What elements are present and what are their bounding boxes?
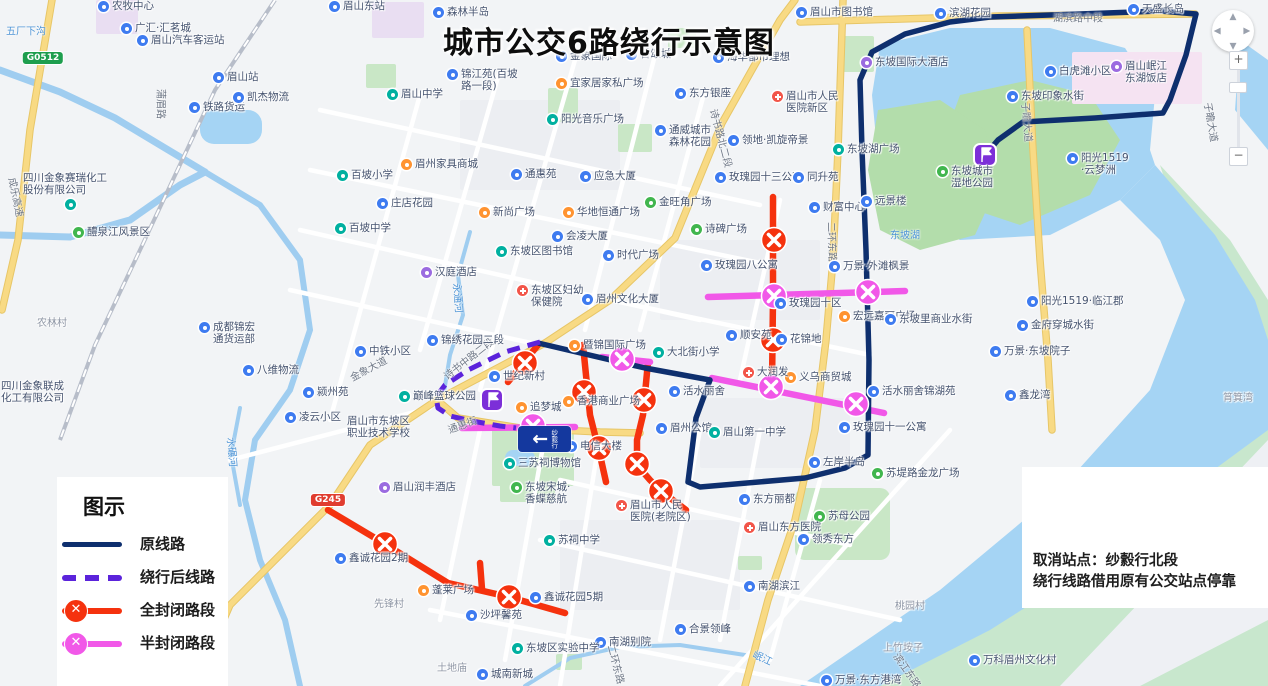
place-icon [243,365,254,376]
place-icon [969,655,980,666]
place-icon [329,1,340,12]
place-icon [466,610,477,621]
place-icon [728,135,739,146]
map-poi: 万景·东方港湾 [821,675,901,686]
map-poi: 暨锦国际广场 [569,340,646,352]
map-poi: 眉山汽车客运站 [137,35,225,47]
poi-label: 领秀东方 [812,534,854,546]
shopping-icon [401,159,412,170]
map-poi: 南湖别院 [595,637,651,649]
map-poi: 玫瑰园十区 [775,298,842,310]
poi-label: 玫瑰园八公寓 [715,260,778,272]
place-icon [885,314,896,325]
poi-label: 万科眉州文化村 [983,655,1057,667]
school-icon [544,535,555,546]
map-poi: 土地庙 [437,663,467,674]
poi-label: 东方银座 [689,88,731,100]
place-icon [1128,4,1139,15]
map-poi: 时代广场 [603,250,659,262]
legend-item-dashed: 绕行后线路 [57,560,228,593]
poi-label: 锦江苑(百坡 路一段) [461,69,518,93]
poi-label: 义乌商贸城 [799,372,852,384]
poi-label: 庄店花园 [391,198,433,210]
place-icon [233,92,244,103]
shopping-icon [516,402,527,413]
poi-label: 金府穿城水街 [1031,320,1094,332]
park-icon [645,197,656,208]
map-area [200,110,262,144]
map-poi: 顺安苑 [726,330,772,342]
poi-label: 眉州公馆 [670,423,712,435]
place-icon [552,231,563,242]
map-poi: 百坡小学 [337,170,393,182]
zoom-in-button[interactable]: + [1229,51,1248,70]
map-poi: 锦绣花园二段 [427,335,504,347]
poi-label: 眉山市人民 医院(老院区) [630,500,691,524]
school-icon [496,246,507,257]
poi-label: 华地恒通广场 [577,207,640,219]
map-poi: 同升苑 [793,172,839,184]
poi-label: 香港商业广场 [577,396,640,408]
map-poi: 南湖滨江 [744,581,800,593]
place-icon [303,387,314,398]
shopping-icon [556,78,567,89]
place-icon [796,7,807,18]
water-label: 五厂下沟 [6,23,46,38]
map-poi: 眉州公馆 [656,423,712,435]
highway-shield: G245 [311,494,345,506]
place-icon [580,171,591,182]
poi-label: 蓬莱广场 [432,585,474,597]
map-poi [65,199,79,210]
poi-label: 百坡小学 [351,170,393,182]
poi-label: 玫瑰园十一公寓 [853,422,927,434]
poi-label: 眉山润丰酒店 [393,482,456,494]
place-icon [199,322,210,333]
park-icon [691,224,702,235]
poi-label: 玫瑰园十区 [789,298,842,310]
place-icon [285,412,296,423]
map-poi: 鑫龙湾 [1005,390,1051,402]
place-icon [1027,296,1038,307]
map-poi: 左岸半岛 [809,457,865,469]
poi-label: 三苏祠博物馆 [518,458,581,470]
map-poi: 东坡宋城· 香蝶慈航 [511,482,570,506]
poi-label: 汉庭酒店 [435,267,477,279]
map-poi: 森林半岛 [433,7,489,19]
map-poi: 金旺角广场 [645,197,712,209]
map-poi: 阳光1519·临江郡 [1027,296,1124,308]
school-icon [399,391,410,402]
map-poi: 筲箕湾 [1223,393,1253,404]
place-icon [530,592,541,603]
closure-x-icon: ✕ [64,632,88,656]
highway-shield: G0512 [23,52,63,64]
zoom-slider-handle[interactable] [1229,82,1247,93]
poi-label: 新尚广场 [493,207,535,219]
poi-label: 中铁小区 [369,346,411,358]
poi-label: 南湖滨江 [758,581,800,593]
shopping-icon [479,207,490,218]
road-label: 蒲眉路 [155,89,170,119]
map-poi: 苏母公园 [814,511,870,523]
poi-label: 天盛长岛 [1142,4,1184,16]
legend-rows: 原线路绕行后线路✕全封闭路段✕半封闭路段 [57,527,228,659]
shopping-icon [839,311,850,322]
poi-label: 诗碑广场 [705,224,747,236]
map-poi: 会凌大厦 [552,231,608,243]
hotel-icon [421,267,432,278]
park-icon [511,482,522,493]
map-poi: 万科眉州文化村 [969,655,1057,667]
place-icon [935,8,946,19]
map-poi: 鑫诚花园5期 [530,592,603,604]
poi-label: 白虎滩小区 [1059,66,1112,78]
map-poi: 眉山中学 [387,89,443,101]
water-label: 东坡湖 [890,227,920,242]
poi-label: 苏祠中学 [558,535,600,547]
poi-label: 眉山中学 [401,89,443,101]
place-icon [861,196,872,207]
hospital-icon [517,285,528,296]
poi-label: 东坡宋城· 香蝶慈航 [525,482,570,506]
map-poi: 眉山市人民 医院新区 [772,91,839,115]
map-poi: 眉山站 [213,72,259,84]
school-icon [335,223,346,234]
water-label: 水碾河 [224,436,242,467]
poi-label: 大润发 [757,367,789,379]
map-poi: 凌云小区 [285,412,341,424]
poi-label: 眉州家具商城 [415,159,478,171]
map-poi: 通惠苑 [511,169,557,181]
poi-label: 锦绣花园二段 [441,335,504,347]
place-icon [776,334,787,345]
legend-header: 图示 [83,491,228,521]
hotel-icon [861,57,872,68]
poi-label: 铁路货运 [203,102,245,114]
poi-label: 眉山第一中学 [723,427,786,439]
shopping-icon [418,585,429,596]
place-icon [868,386,879,397]
map-poi: 四川金象联成 化工有限公司 [1,381,64,405]
place-icon [355,346,366,357]
poi-label: 农林村 [37,318,67,329]
map-poi: 世纪新村 [489,371,545,383]
shopping-icon [563,396,574,407]
poi-label: 眉山站 [227,72,259,84]
poi-label: 沙坪馨苑 [480,610,522,622]
legend-swatch-red: ✕ [60,597,124,623]
poi-label: 东坡区妇幼 保健院 [531,285,584,309]
map-poi: 东坡湖广场 [833,144,900,156]
map-poi: 眉山市图书馆 [796,7,873,19]
poi-label: 颍州苑 [317,387,349,399]
place-icon [675,624,686,635]
hotel-icon [379,482,390,493]
poi-label: 城南新城 [491,669,533,681]
poi-label: 东坡湖广场 [847,144,900,156]
place-icon [1007,91,1018,102]
poi-label: 东坡印象水街 [1021,91,1084,103]
poi-label: 合景领峰 [689,624,731,636]
poi-label: 通惠苑 [525,169,557,181]
place-icon [809,202,820,213]
school-icon [653,347,664,358]
map-poi: 宜家居家私广场 [556,78,644,90]
map-poi: 东坡区图书馆 [496,246,573,258]
poi-label: 巅峰篮球公园 [413,391,476,403]
map-poi: 农林村 [37,318,67,329]
place-icon [656,423,667,434]
place-icon [489,371,500,382]
park-icon [937,166,948,177]
poi-label: 领地·凯旋帝景 [742,135,808,147]
poi-label: 眉山市图书馆 [810,7,873,19]
map-poi: 万景·外滩枫景 [829,261,909,273]
one-way-sign-street: 纱縠行 [550,429,557,449]
poi-label: 东坡区实验中学 [526,643,600,655]
place-icon [98,1,109,12]
map-poi: 蓬莱广场 [418,585,474,597]
poi-label: 凯杰物流 [247,92,289,104]
map-poi: 合景领峰 [675,624,731,636]
poi-label: 玫瑰园十三公寓 [729,172,803,184]
one-way-sign: ← 纱縠行 [518,426,571,452]
map-poi: 义乌商贸城 [785,372,852,384]
note-line1: 取消站点：纱縠行北段 [1033,551,1268,572]
place-icon [1017,320,1028,331]
school-icon [504,458,515,469]
map-poi: 玫瑰园十三公寓 [715,172,803,184]
place-icon [744,581,755,592]
place-icon [726,330,737,341]
map-poi: 玫瑰园十一公寓 [839,422,927,434]
compass-control[interactable]: ▲ ▲ ▲ ▲ [1212,10,1254,52]
legend-swatch-magenta: ✕ [60,630,124,656]
poi-label: 远景楼 [875,196,907,208]
poi-label: 眉山岷江 东湖饭店 [1125,61,1167,85]
school-icon [65,199,76,210]
map-poi: 大润发 [743,367,789,379]
map-area [366,64,396,88]
map-poi: 阳光1519 ·云梦洲 [1067,153,1129,177]
pan-west-icon[interactable]: ▲ [1212,28,1222,35]
map-poi: 眉山润丰酒店 [379,482,456,494]
poi-label: 左岸半岛 [823,457,865,469]
park-icon [73,227,84,238]
school-icon [547,114,558,125]
place-icon [990,346,1001,357]
map-poi: 先锋村 [374,599,404,610]
place-icon [715,172,726,183]
closure-x-icon: ✕ [64,599,88,623]
map-poi: 庄店花园 [377,198,433,210]
legend-label: 绕行后线路 [140,566,215,587]
place-icon [377,198,388,209]
map-poi: 汉庭酒店 [421,267,477,279]
poi-label: 顺安苑 [740,330,772,342]
poi-label: 时代广场 [617,250,659,262]
map-poi: 东坡里商业水街 [885,314,973,326]
hospital-icon [743,367,754,378]
poi-label: 四川金象赛瑞化工 股份有限公司 [23,173,107,197]
poi-label: 苏堤路金龙广场 [886,468,960,480]
poi-label: 森林半岛 [447,7,489,19]
map-poi: 应急大厦 [580,171,636,183]
map-poi: 华地恒通广场 [563,207,640,219]
map-poi: 眉山岷江 东湖饭店 [1111,61,1167,85]
poi-label: 土地庙 [437,663,467,674]
map-poi: 领秀东方 [798,534,854,546]
map-poi: 东方银座 [675,88,731,100]
poi-label: 金旺角广场 [659,197,712,209]
map-poi: 中铁小区 [355,346,411,358]
map-poi: 阳光音乐广场 [547,114,624,126]
hospital-icon [772,91,783,102]
map-poi: 活水丽舍 [669,386,725,398]
place-icon [675,88,686,99]
closed-segment-route [480,563,482,589]
place-icon [511,169,522,180]
poi-label: 八维物流 [257,365,299,377]
poi-label: 筲箕湾 [1223,393,1253,404]
legend-label: 全封闭路段 [140,599,215,620]
bus-detour-map[interactable]: 农牧中心广汇·汇茗城眉山汽车客运站眉山东站森林半岛金象国际香颂城海华都市理想眉山… [0,0,1268,686]
poi-label: 万景·东坡院子 [1004,346,1070,358]
place-icon [1067,153,1078,164]
hotel-icon [1111,61,1122,72]
poi-label: 阳光音乐广场 [561,114,624,126]
poi-label: 鑫诚花园2期 [349,553,408,565]
map-poi: 眉山第一中学 [709,427,786,439]
map-poi: 三苏祠博物馆 [504,458,581,470]
place-icon [839,422,850,433]
poi-label: 眉州文化大厦 [596,294,659,306]
school-icon [833,144,844,155]
place-icon [427,335,438,346]
poi-label: 百坡中学 [349,223,391,235]
map-poi: 眉山东方医院 [744,522,821,534]
poi-label: 先锋村 [374,599,404,610]
map-poi: 锦江苑(百坡 路一段) [447,69,518,93]
map-poi: 东坡印象水街 [1007,91,1084,103]
legend-item-navy: 原线路 [57,527,228,560]
map-poi: 东坡城市 湿地公园 [937,166,993,190]
legend-item-red: ✕全封闭路段 [57,593,228,626]
place-icon [1005,390,1016,401]
map-poi: 诗碑广场 [691,224,747,236]
map-poi: 万景·东坡院子 [990,346,1070,358]
poi-label: 眉山汽车客运站 [151,35,225,47]
map-poi: 成都锦宏 通货运部 [199,322,255,346]
map-poi: 领地·凯旋帝景 [728,135,808,147]
map-poi: 大北街小学 [653,347,720,359]
place-icon [701,260,712,271]
map-poi: 天盛长岛 [1128,4,1184,16]
poi-label: 万景·外滩枫景 [843,261,909,273]
place-icon [655,125,666,136]
poi-label: 东方丽都 [753,494,795,506]
place-icon [582,294,593,305]
map-poi: 眉州文化大厦 [582,294,659,306]
place-icon [433,7,444,18]
poi-label: 苏母公园 [828,511,870,523]
poi-label: 滨湖花园 [949,8,991,20]
shopping-icon [569,340,580,351]
place-icon [477,669,488,680]
hospital-icon [616,500,627,511]
map-poi: 农牧中心 [98,1,154,13]
map-poi: 桃园村 [895,601,925,612]
map-poi: 玫瑰园八公寓 [701,260,778,272]
poi-label: 阳光1519·临江郡 [1041,296,1124,308]
school-icon [709,427,720,438]
map-poi: 远景楼 [861,196,907,208]
place-icon [447,69,458,80]
poi-label: 活水丽舍锦湖苑 [882,386,956,398]
poi-label: 通威城市 森林花园 [669,125,711,149]
park-icon [872,468,883,479]
place-icon [829,261,840,272]
map-poi: 东坡国际大酒店 [861,57,949,69]
map-poi: 电信大楼 [566,441,622,453]
poi-label: 桃园村 [895,601,925,612]
map-poi: 东方丽都 [739,494,795,506]
map-poi: 四川金象赛瑞化工 股份有限公司 [23,173,107,197]
detour-note: 取消站点：纱縠行北段 绕行线路借用原有公交站点停靠 [1022,467,1268,608]
page-title: 城市公交6路绕行示意图 [443,18,775,62]
map-poi: 凯杰物流 [233,92,289,104]
map-poi: 鑫诚花园2期 [335,553,408,565]
poi-label: 东坡国际大酒店 [875,57,949,69]
left-arrow-icon: ← [532,430,548,449]
poi-label: 凌云小区 [299,412,341,424]
map-poi: 滨湖花园 [935,8,991,20]
place-icon [1045,66,1056,77]
poi-label: 上竹垵子 [883,643,923,654]
zoom-out-button[interactable]: − [1229,147,1248,166]
map-poi: 通威城市 森林花园 [655,125,711,149]
poi-label: 追梦城 [530,402,562,414]
poi-label: 暨锦国际广场 [583,340,646,352]
road-label: 湖滨路中段 [1053,10,1103,25]
poi-label: 世纪新村 [503,371,545,383]
map-poi: 巅峰篮球公园 [399,391,476,403]
poi-label: 鑫诚花园5期 [544,592,603,604]
map-poi: 花锦地 [776,334,822,346]
legend-panel: 图示 原线路绕行后线路✕全封闭路段✕半封闭路段 [57,477,228,686]
pan-east-icon[interactable]: ▲ [1241,28,1251,35]
place-icon [669,386,680,397]
map-poi: 香港商业广场 [563,396,640,408]
map-poi: 城南新城 [477,669,533,681]
pan-north-icon[interactable]: ▲ [1230,12,1237,22]
shopping-icon [563,207,574,218]
map-poi: 百坡中学 [335,223,391,235]
poi-label: 大北街小学 [667,347,720,359]
map-area [738,556,762,570]
place-icon [335,553,346,564]
pan-south-icon[interactable]: ▲ [1230,41,1237,51]
legend-label: 半封闭路段 [140,632,215,653]
school-icon [387,89,398,100]
poi-label: 电信大楼 [580,441,622,453]
poi-label: 财富中心 [823,202,865,214]
place-icon [809,457,820,468]
place-icon [793,172,804,183]
map-poi: 醴泉江风景区 [73,227,150,239]
place-icon [213,72,224,83]
